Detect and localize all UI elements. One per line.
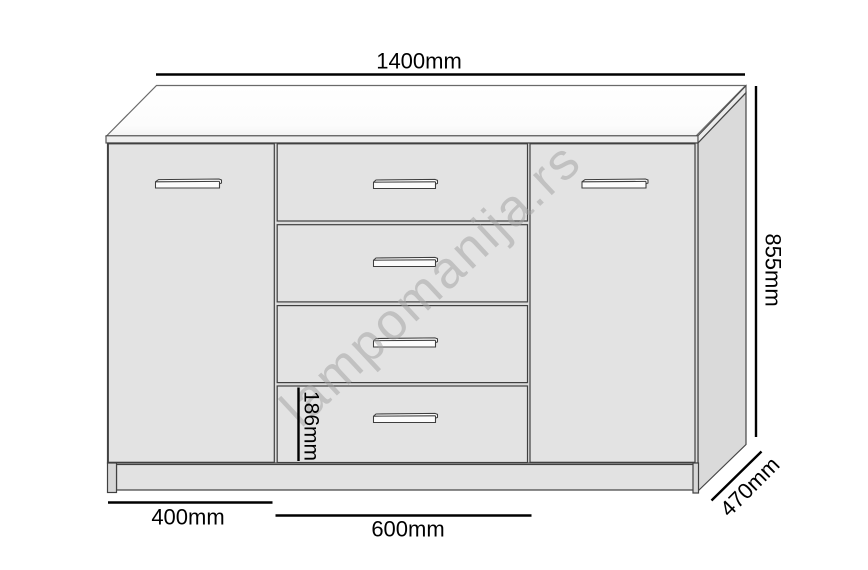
svg-text:600mm: 600mm xyxy=(371,517,444,542)
svg-text:400mm: 400mm xyxy=(151,505,224,530)
svg-text:1400mm: 1400mm xyxy=(376,49,462,74)
svg-text:855mm: 855mm xyxy=(761,233,786,306)
svg-text:186mm: 186mm xyxy=(300,391,323,461)
